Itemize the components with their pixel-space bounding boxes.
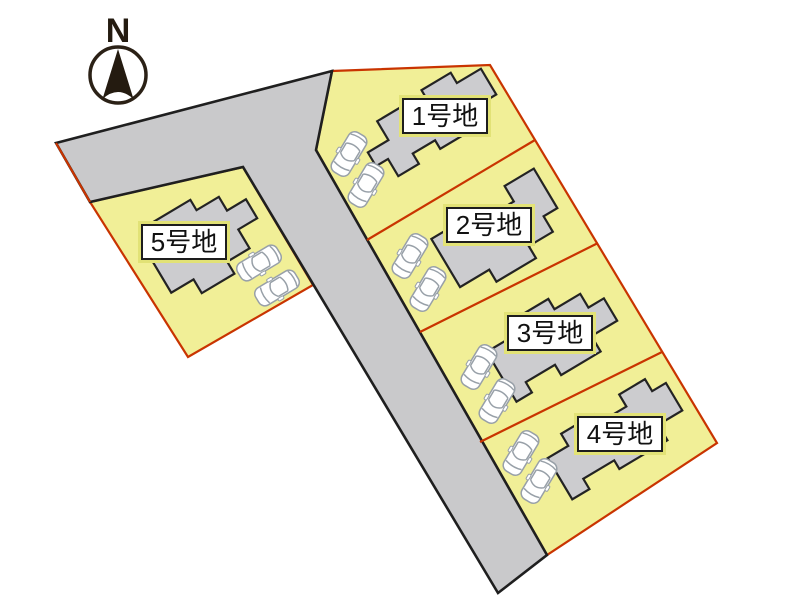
lot-label-text: 2号地 [456,210,522,240]
lot-label-5: 5号地 [138,221,230,263]
lot-label-text: 1号地 [412,101,478,131]
lot-label-text: 4号地 [587,419,653,449]
lot-label-3: 3号地 [504,312,596,354]
site-plan-canvas: 1号地 2号地 3号地 4号地 5号地 N [0,0,800,600]
compass-north-label: N [106,12,131,50]
lot-label-2: 2号地 [443,204,535,246]
lot-label-1: 1号地 [399,95,491,137]
lot-label-text: 3号地 [517,318,583,348]
lot-label-text: 5号地 [151,227,217,257]
lot-label-4: 4号地 [574,413,666,455]
site-plan: 1号地 2号地 3号地 4号地 5号地 N [0,0,800,600]
compass: N [90,12,146,103]
